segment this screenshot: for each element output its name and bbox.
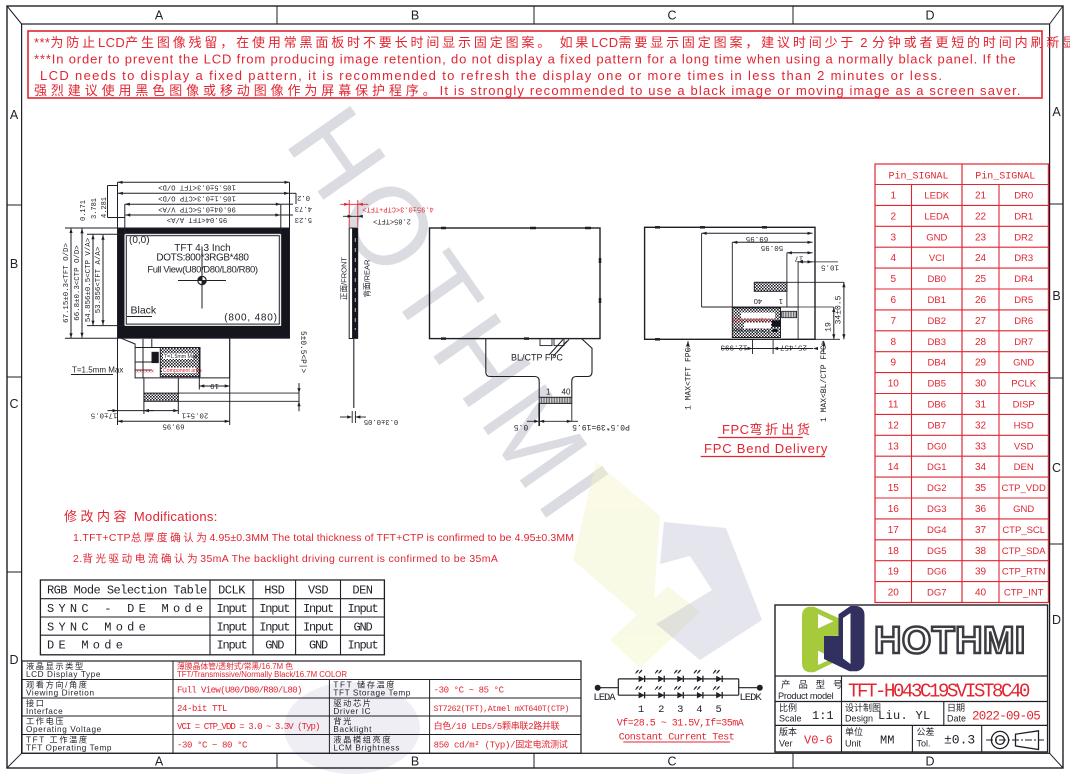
svg-text:C: C (667, 755, 676, 769)
svg-text:40: 40 (754, 297, 762, 306)
svg-text:Viewing Diretion: Viewing Diretion (26, 689, 95, 698)
svg-text:1:1: 1:1 (812, 709, 834, 723)
svg-text:20.5±1: 20.5±1 (181, 411, 208, 419)
svg-text:39: 39 (975, 567, 987, 578)
svg-text:D: D (1052, 613, 1061, 627)
svg-text:Component area: Component area (731, 316, 774, 322)
svg-text:-30 °C ~ 80 °C: -30 °C ~ 80 °C (177, 741, 248, 751)
svg-text:TFT-H043C19SVIST8C40: TFT-H043C19SVIST8C40 (848, 681, 1030, 703)
svg-text:T=1.5mm Max: T=1.5mm Max (164, 354, 198, 360)
svg-text:Full View(U80/D80/R80/L80): Full View(U80/D80/R80/L80) (177, 686, 302, 696)
svg-text:2.85<TFT>: 2.85<TFT> (373, 216, 411, 224)
svg-text:C: C (9, 397, 18, 411)
svg-text:D: D (925, 755, 934, 769)
svg-text:***In order to prevent the LCD: ***In order to prevent the LCD from prod… (34, 52, 1017, 67)
svg-text:40: 40 (975, 588, 987, 599)
svg-text:17: 17 (888, 525, 900, 536)
svg-text:Input: Input (303, 621, 333, 635)
svg-text:3.781: 3.781 (91, 198, 99, 219)
svg-text:14: 14 (888, 462, 900, 473)
svg-text:V0-6: V0-6 (804, 734, 833, 748)
svg-text:DR6: DR6 (1014, 316, 1033, 327)
svg-text:LEDA: LEDA (593, 692, 616, 704)
svg-text:DR5: DR5 (1014, 295, 1033, 306)
svg-text:7: 7 (890, 316, 896, 327)
svg-text:CTP_INT: CTP_INT (1004, 588, 1044, 599)
svg-text:96.04±0.5<CTP V/A>: 96.04±0.5<CTP V/A> (158, 204, 236, 212)
svg-text:CTP_RTN: CTP_RTN (1002, 567, 1046, 578)
svg-text:TFT Storage Temp: TFT Storage Temp (333, 689, 411, 698)
svg-text:69.95: 69.95 (162, 421, 184, 429)
svg-text:(800, 480): (800, 480) (224, 313, 278, 324)
svg-text:VSD: VSD (1014, 441, 1034, 452)
svg-text:Input: Input (303, 602, 333, 616)
svg-text:DE Mode: DE Mode (47, 639, 127, 653)
svg-text:ST7262(TFT),Atmel mXT640T(CTP): ST7262(TFT),Atmel mXT640T(CTP) (434, 704, 569, 714)
svg-text:18: 18 (888, 546, 900, 557)
svg-text:Pin_SIGNAL: Pin_SIGNAL (888, 171, 948, 183)
svg-text:Component area: Component area (163, 368, 202, 374)
svg-text:DG6: DG6 (927, 567, 947, 578)
svg-text:xxxxxx: xxxxxx (136, 369, 154, 375)
svg-text:5.23: 5.23 (295, 215, 312, 223)
svg-text:GND: GND (265, 639, 284, 653)
svg-text:4.95±0.3<CTP+TFT>: 4.95±0.3<CTP+TFT> (362, 204, 433, 212)
svg-text:0.2: 0.2 (297, 193, 310, 201)
svg-text:产 品 型 号: 产 品 型 号 (781, 679, 845, 691)
svg-text:C: C (667, 9, 676, 23)
svg-text:D: D (925, 9, 934, 23)
svg-text:TFT Operating Temp: TFT Operating Temp (26, 744, 112, 753)
svg-text:A: A (1052, 105, 1061, 119)
svg-text:33: 33 (975, 441, 987, 452)
svg-text:DR3: DR3 (1014, 253, 1033, 264)
svg-text:SYNC Mode: SYNC Mode (47, 621, 150, 635)
svg-text:4.281: 4.281 (101, 197, 109, 218)
svg-text:4: 4 (890, 253, 896, 264)
svg-text:3: 3 (677, 704, 683, 716)
svg-text:5±0.5<P|>: 5±0.5<P|> (298, 331, 306, 373)
svg-text:Operating Voltage: Operating Voltage (26, 725, 102, 734)
svg-text:2022-09-05: 2022-09-05 (972, 710, 1040, 724)
svg-text:Unit: Unit (845, 739, 862, 749)
svg-text:10.5: 10.5 (821, 263, 840, 271)
svg-text:34: 34 (975, 462, 987, 473)
svg-text:Input: Input (347, 602, 377, 616)
svg-text:PCLK: PCLK (1011, 379, 1036, 390)
svg-text:HSD: HSD (264, 584, 284, 598)
svg-text:日期: 日期 (947, 703, 965, 713)
svg-text:DCLK: DCLK (218, 584, 246, 598)
svg-text:T=1.5mm Max: T=1.5mm Max (72, 366, 123, 375)
svg-text:34±0.5: 34±0.5 (835, 295, 844, 324)
svg-text:Tol.: Tol. (917, 739, 931, 749)
svg-text:(0,0): (0,0) (129, 235, 150, 246)
svg-text:DG3: DG3 (927, 504, 947, 515)
svg-text:8: 8 (890, 337, 896, 348)
svg-text:版本: 版本 (779, 726, 797, 737)
svg-text:6: 6 (890, 295, 896, 306)
svg-text:HOTHMI: HOTHMI (874, 620, 1026, 662)
svg-text:1 MAX<BL/CTP FPC>: 1 MAX<BL/CTP FPC> (820, 340, 829, 422)
svg-text:19: 19 (210, 381, 219, 389)
svg-text:单位: 单位 (845, 726, 863, 737)
svg-text:DB7: DB7 (928, 420, 946, 431)
svg-text:31: 31 (975, 399, 987, 410)
svg-text:强烈建议使用黑色图像或移动图像作为屏幕保护程序。It is: 强烈建议使用黑色图像或移动图像作为屏幕保护程序。It is strongly r… (34, 83, 1022, 98)
svg-text:背面/REAR: 背面/REAR (362, 259, 372, 298)
svg-text:1.TFT+CTP总厚度确认为4.95±0.3MM The: 1.TFT+CTP总厚度确认为4.95±0.3MM The total thic… (73, 531, 574, 544)
svg-text:9: 9 (890, 358, 896, 369)
svg-text:11: 11 (888, 399, 899, 410)
svg-text:17±0.5: 17±0.5 (91, 411, 118, 419)
svg-text:32: 32 (975, 420, 987, 431)
svg-text:P0.5*39=19.5: P0.5*39=19.5 (572, 422, 630, 431)
svg-text:25.457: 25.457 (780, 343, 807, 351)
svg-text:LCD Display Type: LCD Display Type (26, 670, 101, 679)
svg-text:Pin_SIGNAL: Pin_SIGNAL (975, 171, 1035, 183)
svg-text:T=1.5mm Max: T=1.5mm Max (733, 326, 770, 332)
svg-text:LCM Brightness: LCM Brightness (333, 744, 400, 753)
svg-text:CTP_SDA: CTP_SDA (1002, 546, 1046, 557)
svg-text:50.95: 50.95 (760, 243, 783, 251)
svg-text:白色/10 LEDs/5颗串联2路并联: 白色/10 LEDs/5颗串联2路并联 (434, 720, 560, 732)
svg-text:Full View(U80/D80/L80/R80): Full View(U80/D80/L80/R80) (147, 265, 258, 276)
svg-text:RGB Mode Selection Table: RGB Mode Selection Table (47, 584, 207, 598)
svg-text:正面/FRONT: 正面/FRONT (340, 257, 349, 300)
svg-text:DR7: DR7 (1014, 337, 1033, 348)
svg-text:D: D (9, 653, 18, 667)
svg-text:Vf=28.5 ~ 31.5V,If=35mA: Vf=28.5 ~ 31.5V,If=35mA (617, 718, 744, 730)
svg-text:VCI = CTP_VDD = 3.0 ~ 3.3V (Ty: VCI = CTP_VDD = 3.0 ~ 3.3V (Typ) (177, 722, 319, 732)
svg-text:DG7: DG7 (927, 588, 947, 599)
svg-text:30: 30 (975, 379, 987, 390)
svg-text:DISP: DISP (1013, 399, 1035, 410)
svg-text:LEDK: LEDK (740, 692, 763, 704)
svg-text:1 MAX<TFT FPC>: 1 MAX<TFT FPC> (685, 343, 694, 410)
svg-text:Scale: Scale (779, 714, 802, 724)
svg-text:DB6: DB6 (928, 399, 946, 410)
svg-text:MM: MM (880, 734, 894, 748)
svg-text:95.04<TFT A/A>: 95.04<TFT A/A> (167, 215, 227, 223)
svg-text:1: 1 (546, 388, 551, 397)
svg-text:1: 1 (638, 704, 644, 716)
svg-text:12: 12 (888, 420, 900, 431)
svg-text:16: 16 (888, 504, 900, 515)
svg-text:850 cd/m² (Typ)/固定电流测试: 850 cd/m² (Typ)/固定电流测试 (434, 739, 568, 751)
svg-text:DEN: DEN (352, 584, 372, 598)
svg-text:±0.3: ±0.3 (944, 733, 975, 748)
svg-text:2.背光驱动电流确认为35mA The backlight: 2.背光驱动电流确认为35mA The backlight driving cu… (73, 552, 498, 565)
svg-text:5: 5 (716, 704, 722, 716)
svg-text:53.856<TFT A/A>: 53.856<TFT A/A> (95, 246, 103, 313)
svg-text:Backlight: Backlight (333, 725, 372, 734)
svg-text:DEN: DEN (1014, 462, 1034, 473)
svg-text:DG4: DG4 (927, 525, 947, 536)
svg-text:DG0: DG0 (927, 441, 947, 452)
svg-text:VSD: VSD (308, 584, 328, 598)
svg-text:13: 13 (888, 441, 900, 452)
svg-text:0.5: 0.5 (514, 422, 529, 431)
svg-text:CTP_SCL: CTP_SCL (1002, 525, 1045, 536)
svg-text:B: B (411, 9, 419, 23)
svg-text:69.95: 69.95 (745, 234, 768, 242)
svg-text:12.993: 12.993 (720, 343, 748, 351)
svg-text:设计制图: 设计制图 (845, 702, 881, 713)
svg-text:Input: Input (216, 602, 246, 616)
svg-text:10: 10 (888, 379, 900, 390)
svg-text:DG5: DG5 (927, 546, 947, 557)
svg-text:C: C (1052, 461, 1061, 475)
svg-text:25: 25 (975, 274, 987, 285)
svg-text:DB0: DB0 (928, 274, 946, 285)
svg-text:4: 4 (696, 704, 702, 716)
svg-text:0.3±0.05: 0.3±0.05 (364, 417, 399, 425)
svg-text:FPC弯折出货: FPC弯折出货 (722, 422, 813, 437)
svg-text:26: 26 (975, 295, 987, 306)
svg-text:B: B (10, 257, 18, 271)
svg-text:B: B (1052, 289, 1060, 303)
svg-text:27: 27 (975, 316, 987, 327)
svg-text:GND: GND (309, 639, 328, 653)
svg-text:VCI: VCI (929, 253, 945, 264)
svg-text:28: 28 (975, 337, 987, 348)
svg-text:A: A (155, 755, 164, 769)
svg-text:Input: Input (259, 621, 289, 635)
svg-text:SYNC - DE Mode: SYNC - DE Mode (47, 602, 207, 616)
svg-text:DR4: DR4 (1014, 274, 1033, 285)
svg-text:TFT/Transmissive/Normally Blac: TFT/Transmissive/Normally Black/16.7M CO… (177, 670, 347, 679)
svg-text:Input: Input (216, 621, 246, 635)
svg-text:105.5±0.3<TFT O/D>: 105.5±0.3<TFT O/D> (158, 183, 236, 191)
svg-text:2: 2 (890, 211, 896, 222)
svg-text:DG1: DG1 (927, 462, 947, 473)
svg-text:B: B (411, 755, 419, 769)
svg-text:DB4: DB4 (928, 358, 946, 369)
svg-text:19: 19 (825, 322, 834, 332)
svg-text:DB3: DB3 (928, 337, 946, 348)
svg-text:37: 37 (975, 525, 987, 536)
svg-text:DG2: DG2 (927, 483, 947, 494)
svg-text:67.15±0.3<TFT O/D>: 67.15±0.3<TFT O/D> (63, 243, 71, 323)
svg-text:Driver IC: Driver IC (333, 707, 371, 716)
svg-text:***为防止LCD产生图像残留，在使用常黑面板时不要长时间显: ***为防止LCD产生图像残留，在使用常黑面板时不要长时间显示固定图案。 如果L… (34, 35, 1070, 50)
svg-text:GND: GND (926, 232, 947, 243)
svg-text:比例: 比例 (779, 702, 797, 713)
svg-text:DR0: DR0 (1014, 190, 1033, 201)
svg-text:15: 15 (888, 483, 900, 494)
svg-text:Black: Black (131, 305, 157, 317)
svg-text:2: 2 (658, 704, 664, 716)
svg-text:Design: Design (845, 714, 873, 724)
svg-text:20: 20 (888, 588, 900, 599)
svg-text:LCD needs to display a fixed p: LCD needs to display a fixed pattern, it… (40, 68, 943, 83)
svg-text:19: 19 (888, 567, 900, 578)
svg-text:24: 24 (975, 253, 987, 264)
svg-text:LEDA: LEDA (924, 211, 949, 222)
svg-text:GND: GND (1013, 504, 1034, 515)
svg-text:DB5: DB5 (928, 379, 946, 390)
svg-text:17: 17 (794, 254, 803, 262)
svg-text:Product model: Product model (778, 691, 834, 701)
svg-text:54.856±0.5<CTP V/A>: 54.856±0.5<CTP V/A> (85, 237, 93, 322)
svg-text:22: 22 (975, 211, 987, 222)
svg-text:DB1: DB1 (928, 295, 946, 306)
svg-text:36: 36 (975, 504, 987, 515)
svg-text:FPC Bend Delivery: FPC Bend Delivery (704, 441, 828, 456)
svg-text:3: 3 (890, 232, 896, 243)
svg-text:GND: GND (1013, 358, 1034, 369)
svg-text:公差: 公差 (917, 726, 935, 737)
svg-text:105.1±0.3<CTP O/D>: 105.1±0.3<CTP O/D> (158, 194, 236, 202)
svg-text:修改内容 Modifications:: 修改内容 Modifications: (64, 509, 218, 524)
svg-text:38: 38 (975, 546, 987, 557)
svg-text:40: 40 (562, 388, 571, 397)
svg-text:35: 35 (975, 483, 987, 494)
svg-text:Date: Date (947, 714, 966, 724)
svg-text:CTP_VDD: CTP_VDD (1002, 483, 1046, 494)
svg-text:21: 21 (975, 190, 987, 201)
svg-text:HSD: HSD (1014, 420, 1034, 431)
svg-text:23: 23 (975, 232, 987, 243)
svg-text:Liu. YL: Liu. YL (878, 709, 931, 723)
svg-text:1: 1 (890, 190, 896, 201)
svg-text:4.73: 4.73 (295, 204, 312, 212)
svg-text:DR1: DR1 (1014, 211, 1033, 222)
svg-text:0.171: 0.171 (80, 200, 88, 221)
svg-text:GND: GND (353, 621, 372, 635)
svg-text:LEDK: LEDK (924, 190, 949, 201)
svg-text:Ver: Ver (779, 739, 793, 749)
svg-text:Input: Input (347, 639, 377, 653)
svg-text:A: A (155, 9, 164, 23)
svg-text:DOTS:800*3RGB*480: DOTS:800*3RGB*480 (156, 253, 249, 264)
svg-text:29: 29 (975, 358, 987, 369)
svg-text:Interface: Interface (26, 707, 63, 716)
svg-text:DB2: DB2 (928, 316, 946, 327)
svg-text:24-bit TTL: 24-bit TTL (177, 704, 227, 714)
svg-text:A: A (10, 108, 19, 122)
svg-text:DR2: DR2 (1014, 232, 1033, 243)
svg-text:-30 °C ~ 85 °C: -30 °C ~ 85 °C (434, 686, 505, 696)
svg-text:1: 1 (779, 297, 783, 306)
svg-text:5: 5 (890, 274, 896, 285)
svg-text:Input: Input (216, 639, 246, 653)
svg-text:Input: Input (259, 602, 289, 616)
svg-text:66.8±0.3<CTP O/D>: 66.8±0.3<CTP O/D> (74, 245, 82, 321)
